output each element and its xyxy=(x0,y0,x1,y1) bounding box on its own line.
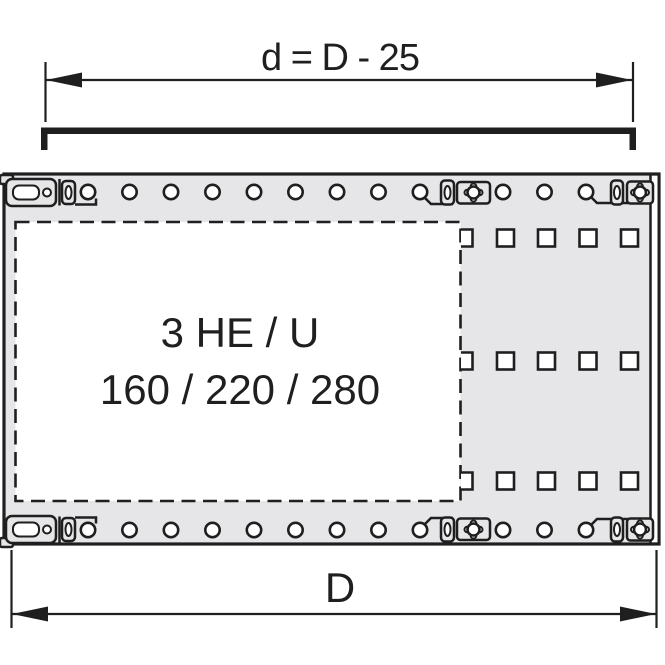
square-hole xyxy=(621,353,638,370)
arrow-left-icon xyxy=(12,607,48,622)
square-hole xyxy=(580,473,597,490)
round-hole xyxy=(247,185,261,199)
clover-hole-icon xyxy=(634,524,646,536)
slide-slot-icon xyxy=(445,523,451,536)
bottom-dimension: D xyxy=(12,550,657,628)
slot-hole xyxy=(13,523,39,537)
slot-hole xyxy=(13,186,39,200)
round-hole xyxy=(330,523,344,537)
round-hole xyxy=(537,185,551,199)
square-hole xyxy=(538,230,555,247)
square-hole xyxy=(621,473,638,490)
round-hole xyxy=(537,523,551,537)
arrow-left-icon xyxy=(46,73,82,88)
half-square-hole xyxy=(461,230,473,247)
square-hole xyxy=(497,353,514,370)
square-hole xyxy=(580,353,597,370)
round-hole xyxy=(81,523,95,537)
slide-slot-icon xyxy=(66,523,72,536)
square-hole xyxy=(497,473,514,490)
round-hole xyxy=(122,185,136,199)
round-hole xyxy=(496,523,510,537)
clover-hole-icon xyxy=(634,187,646,199)
half-square-hole xyxy=(461,353,473,370)
round-hole xyxy=(205,523,219,537)
right-rail-gap xyxy=(652,176,658,542)
round-hole xyxy=(164,523,178,537)
cover-panel: 3 HE / U 160 / 220 / 280 xyxy=(0,174,659,547)
round-hole xyxy=(413,523,427,537)
top-dimension: d = D - 25 xyxy=(46,37,634,122)
round-hole xyxy=(371,185,385,199)
round-hole xyxy=(247,523,261,537)
square-hole xyxy=(497,230,514,247)
square-hole xyxy=(538,353,555,370)
u-profile-strip xyxy=(41,128,636,151)
pin-hole-icon xyxy=(43,189,51,197)
slide-slot-icon xyxy=(66,186,72,199)
round-hole xyxy=(413,185,427,199)
slide-slot-icon xyxy=(614,186,620,199)
arrow-right-icon xyxy=(620,607,656,622)
round-hole xyxy=(288,185,302,199)
dashed-install-area xyxy=(16,222,461,501)
round-hole xyxy=(496,185,510,199)
technical-drawing-page: d = D - 25 3 HE / U 160 / 220 / 280 xyxy=(0,0,665,665)
clover-hole-icon xyxy=(468,187,480,199)
panel-label-line1: 3 HE / U xyxy=(161,309,320,356)
round-hole xyxy=(288,523,302,537)
slide-slot-icon xyxy=(445,186,451,199)
panel-label-line2: 160 / 220 / 280 xyxy=(100,366,380,413)
square-hole xyxy=(621,230,638,247)
cover-plate-drawing: d = D - 25 3 HE / U 160 / 220 / 280 xyxy=(0,0,665,665)
round-hole xyxy=(330,185,344,199)
round-hole xyxy=(81,185,95,199)
round-hole xyxy=(205,185,219,199)
clover-hole-icon xyxy=(468,524,480,536)
slide-slot-icon xyxy=(614,523,620,536)
round-hole xyxy=(122,523,136,537)
round-hole xyxy=(164,185,178,199)
square-hole xyxy=(580,230,597,247)
pin-hole-icon xyxy=(43,526,51,534)
square-hole xyxy=(538,473,555,490)
half-square-hole xyxy=(461,473,473,490)
top-dimension-label: d = D - 25 xyxy=(261,37,419,79)
round-hole xyxy=(371,523,385,537)
bottom-dimension-label: D xyxy=(325,564,355,611)
arrow-right-icon xyxy=(596,73,632,88)
